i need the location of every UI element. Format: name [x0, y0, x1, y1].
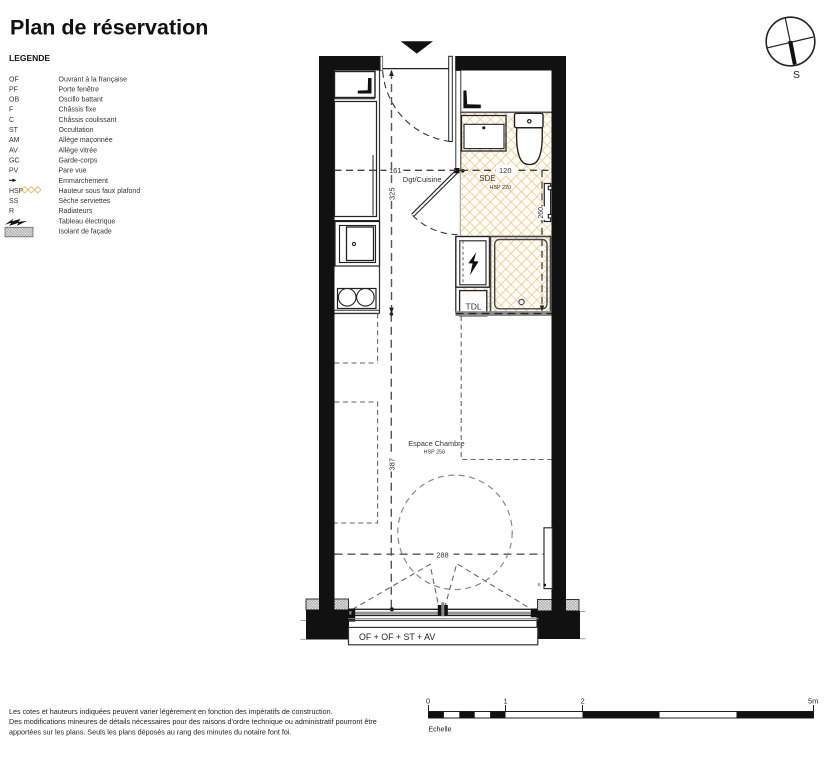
svg-text:HSP: HSP: [9, 188, 24, 195]
svg-text:Allège vitrée: Allège vitrée: [59, 147, 98, 154]
svg-text:R: R: [538, 583, 542, 588]
svg-text:AM: AM: [9, 137, 20, 144]
svg-text:ST: ST: [9, 127, 19, 134]
svg-text:Isolant de façade: Isolant de façade: [59, 229, 112, 236]
svg-text:Châssis coulissant: Châssis coulissant: [59, 117, 117, 124]
svg-text:Des modifications mineures de: Des modifications mineures de détails né…: [9, 717, 377, 726]
svg-text:Sèche serviettes: Sèche serviettes: [59, 198, 111, 205]
svg-text:260: 260: [538, 207, 545, 219]
svg-text:120: 120: [499, 166, 512, 175]
svg-text:OF + OF + ST + AV: OF + OF + ST + AV: [359, 632, 435, 642]
svg-text:Garde-corps: Garde-corps: [59, 158, 98, 165]
svg-text:PV: PV: [9, 168, 19, 175]
svg-text:AV: AV: [9, 147, 18, 154]
svg-text:Tableau électrique: Tableau électrique: [59, 218, 116, 225]
svg-text:Plan de réservation: Plan de réservation: [10, 16, 208, 40]
svg-text:R: R: [9, 208, 14, 215]
svg-text:Oscillo battant: Oscillo battant: [59, 97, 103, 104]
svg-text:C: C: [9, 117, 14, 124]
svg-text:2: 2: [581, 697, 585, 706]
svg-text:Porte fenêtre: Porte fenêtre: [59, 86, 100, 93]
svg-text:Emmarchement: Emmarchement: [59, 178, 108, 185]
svg-text:Hauteur sous faux plafond: Hauteur sous faux plafond: [59, 188, 141, 195]
svg-text:GC: GC: [9, 158, 20, 165]
svg-text:1: 1: [504, 697, 508, 706]
svg-text:5m: 5m: [808, 697, 818, 706]
svg-text:TDL: TDL: [466, 302, 482, 312]
svg-text:0: 0: [426, 697, 430, 706]
svg-text:Radiateurs: Radiateurs: [59, 208, 93, 215]
svg-text:OF: OF: [9, 76, 19, 83]
svg-text:325: 325: [388, 187, 397, 200]
svg-text:SS: SS: [9, 198, 19, 205]
svg-text:Allège maçonnée: Allège maçonnée: [59, 137, 113, 144]
svg-text:HSP 220: HSP 220: [490, 185, 511, 191]
svg-text:Espace Chambre: Espace Chambre: [408, 439, 464, 448]
svg-text:LEGENDE: LEGENDE: [9, 53, 50, 63]
svg-text:S: S: [793, 69, 800, 81]
svg-text:Occultation: Occultation: [59, 127, 94, 134]
svg-text:apportées sur les plans. Seuls: apportées sur les plans. Seuls les plans…: [9, 727, 291, 736]
svg-text:Pare vue: Pare vue: [59, 168, 87, 175]
svg-text:Dgt/Cuisine: Dgt/Cuisine: [403, 175, 442, 184]
svg-text:SDE: SDE: [479, 174, 495, 183]
svg-text:Echelle: Echelle: [429, 727, 452, 734]
svg-text:Les cotes et hauteurs indiquée: Les cotes et hauteurs indiquées peuvent …: [9, 707, 333, 716]
svg-text:Ouvrant à la française: Ouvrant à la française: [59, 76, 128, 83]
svg-text:PF: PF: [9, 86, 18, 93]
svg-text:288: 288: [436, 550, 449, 559]
svg-text:Châssis fixe: Châssis fixe: [59, 107, 97, 114]
svg-text:387: 387: [387, 458, 396, 471]
svg-text:OB: OB: [9, 97, 19, 104]
svg-text:F: F: [9, 107, 13, 114]
svg-text:HSP 250: HSP 250: [424, 450, 445, 456]
